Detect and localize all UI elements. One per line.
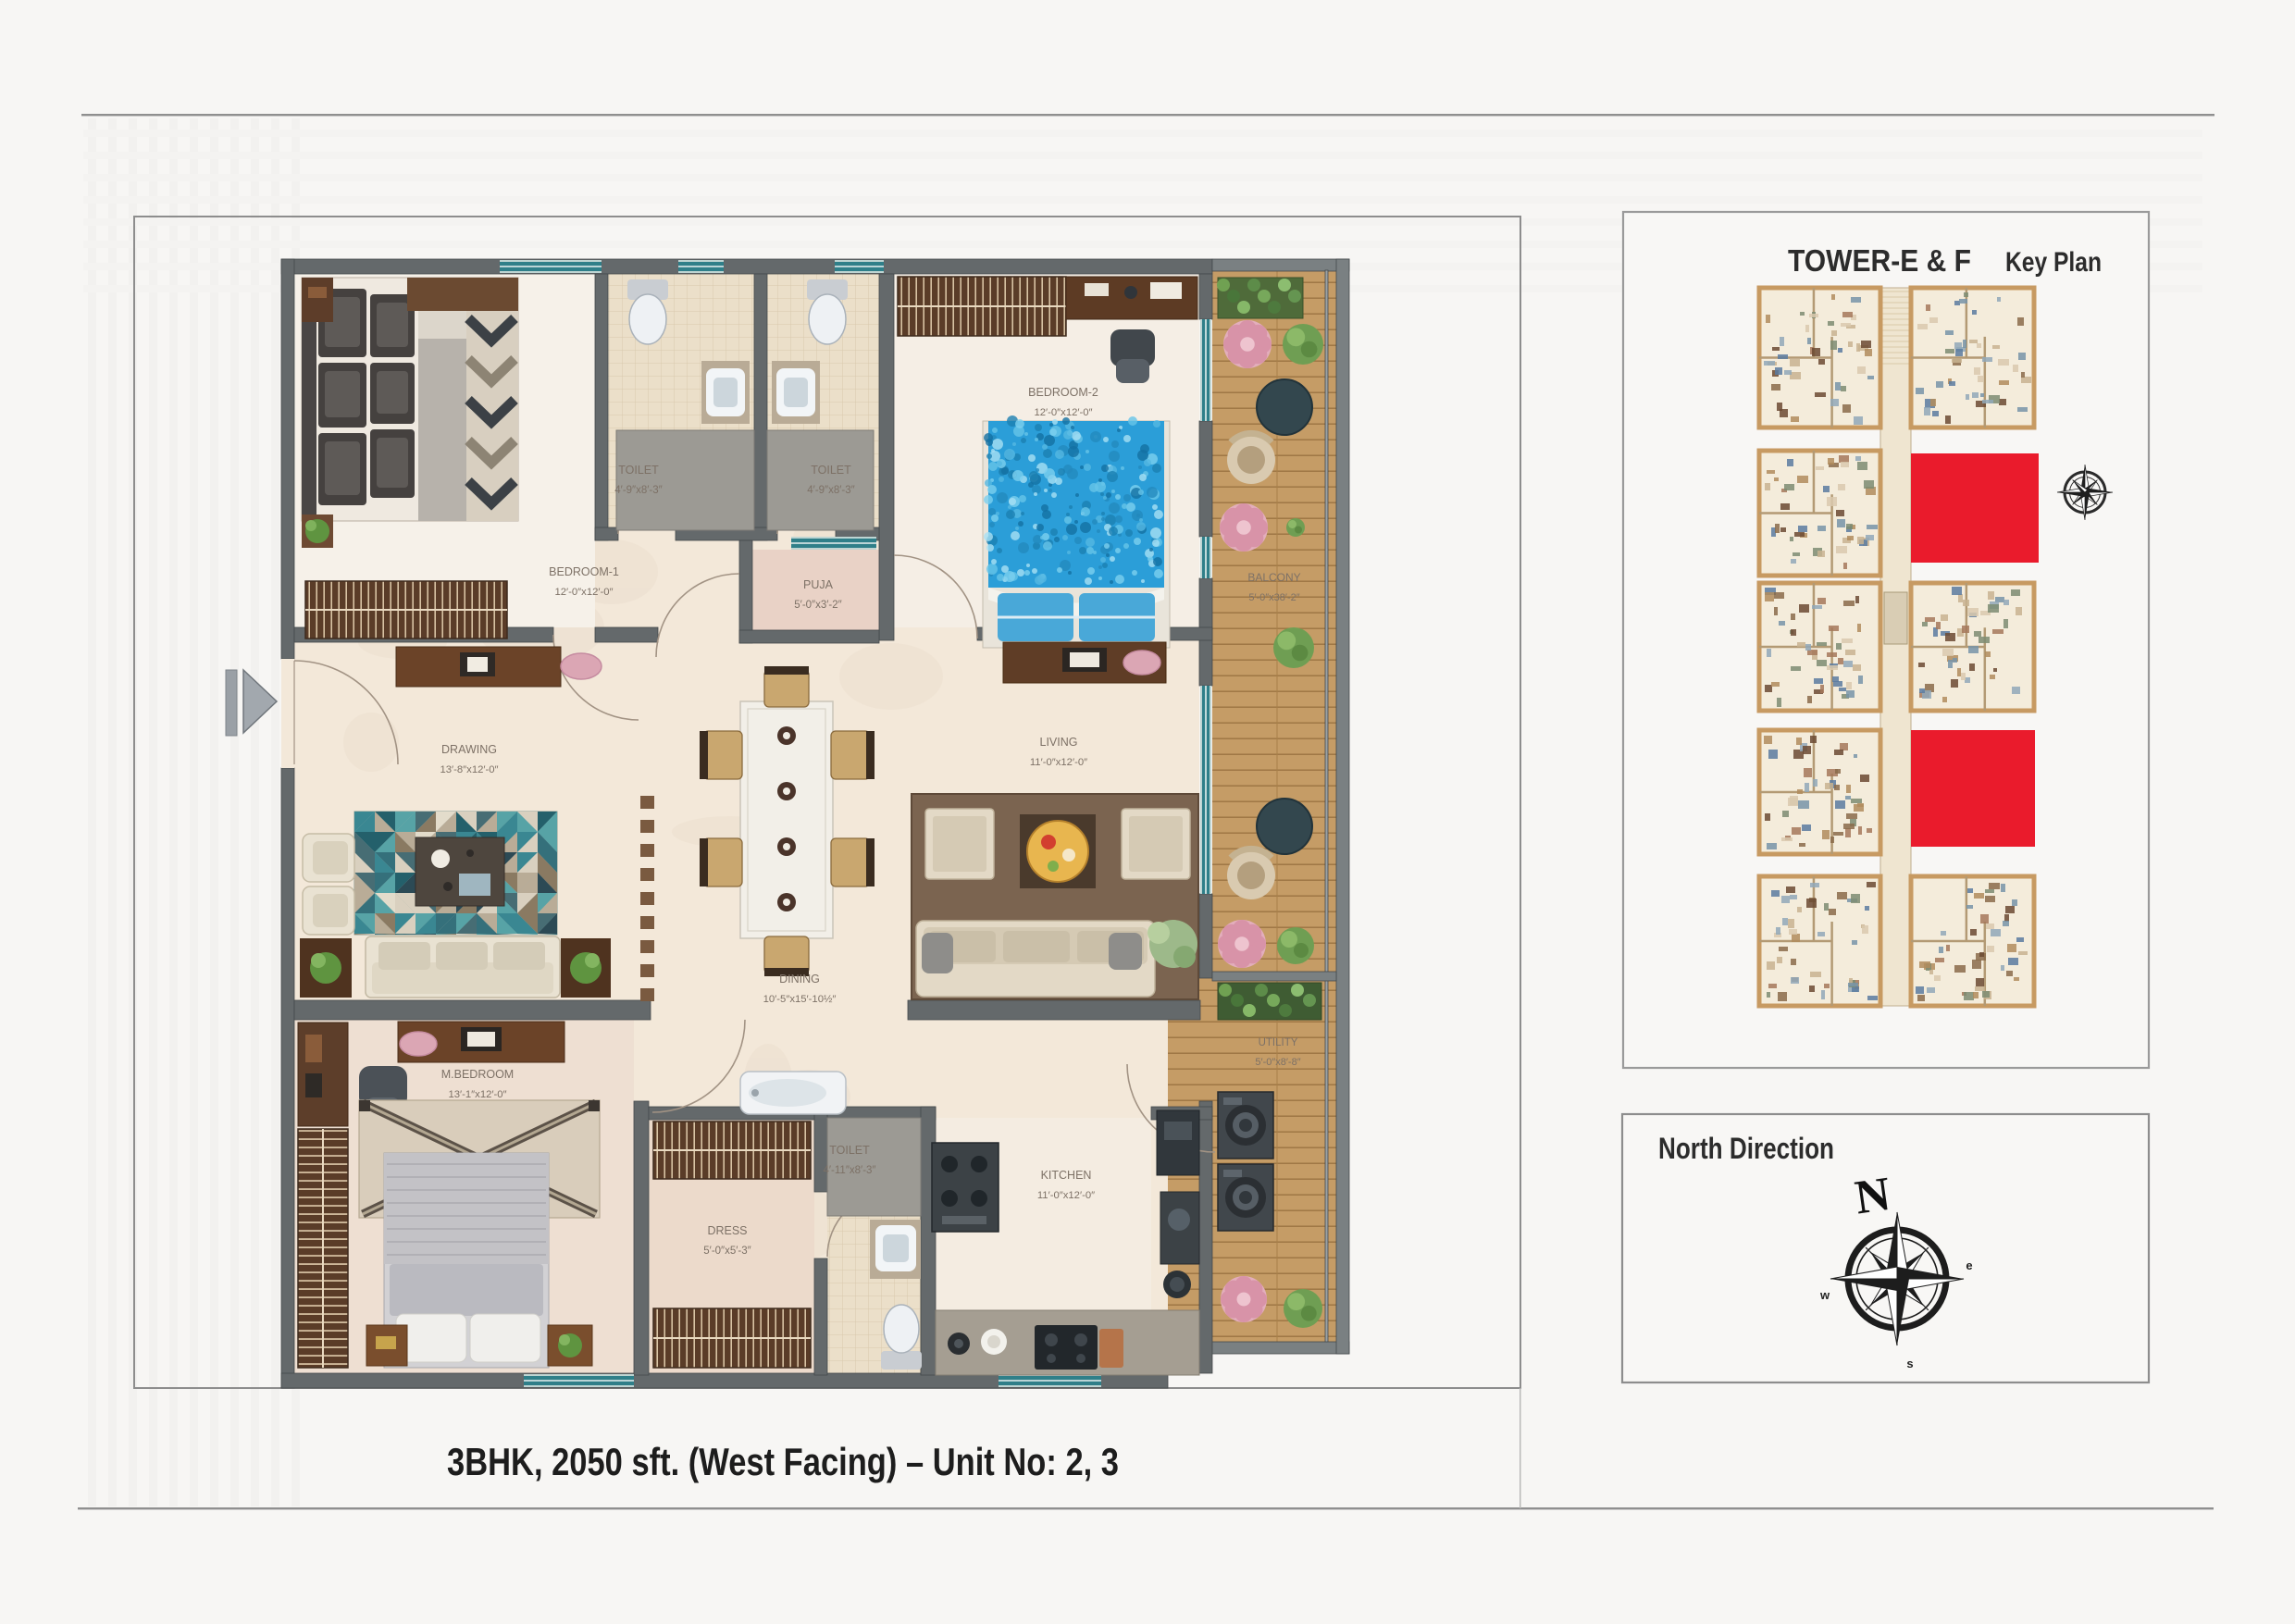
svg-text:LIVING: LIVING	[1040, 736, 1078, 749]
svg-text:DRAWING: DRAWING	[441, 743, 497, 756]
svg-text:5′-0″x3′-2″: 5′-0″x3′-2″	[794, 600, 841, 611]
svg-text:4′-9″x8′-3″: 4′-9″x8′-3″	[614, 485, 662, 496]
svg-text:North Direction: North Direction	[1658, 1132, 1834, 1165]
svg-text:DRESS: DRESS	[707, 1224, 747, 1237]
svg-text:BEDROOM-1: BEDROOM-1	[549, 565, 619, 578]
svg-text:PUJA: PUJA	[803, 578, 834, 591]
svg-text:5′-0″x8′-8″: 5′-0″x8′-8″	[1255, 1057, 1300, 1068]
svg-text:BEDROOM-2: BEDROOM-2	[1028, 386, 1098, 399]
svg-text:TOILET: TOILET	[829, 1144, 870, 1157]
svg-text:12′-0″x12′-0″: 12′-0″x12′-0″	[1034, 407, 1092, 418]
svg-text:3BHK, 2050 sft. (West Facing): 3BHK, 2050 sft. (West Facing) – Unit No:…	[447, 1440, 1119, 1483]
svg-text:10′-5″x15′-10½″: 10′-5″x15′-10½″	[763, 994, 837, 1005]
svg-text:13′-8″x12′-0″: 13′-8″x12′-0″	[440, 764, 498, 775]
svg-text:Key Plan: Key Plan	[2005, 247, 2102, 278]
svg-text:TOWER-E & F: TOWER-E & F	[1788, 243, 1971, 278]
svg-text:KITCHEN: KITCHEN	[1041, 1169, 1092, 1182]
svg-text:N: N	[1852, 1168, 1893, 1225]
svg-text:4′-11″x8′-3″: 4′-11″x8′-3″	[824, 1165, 876, 1176]
svg-text:M.BEDROOM: M.BEDROOM	[441, 1068, 514, 1081]
svg-text:5′-0″x38′-2″: 5′-0″x38′-2″	[1248, 592, 1299, 603]
svg-text:5′-0″x5′-3″: 5′-0″x5′-3″	[703, 1246, 751, 1257]
svg-text:4′-9″x8′-3″: 4′-9″x8′-3″	[807, 485, 854, 496]
svg-text:11′-0″x12′-0″: 11′-0″x12′-0″	[1030, 757, 1087, 768]
svg-text:TOILET: TOILET	[618, 464, 659, 477]
svg-text:BALCONY: BALCONY	[1247, 571, 1300, 584]
svg-text:12′-0″x12′-0″: 12′-0″x12′-0″	[554, 587, 613, 598]
svg-text:e: e	[1966, 1258, 1972, 1272]
svg-text:13′-1″x12′-0″: 13′-1″x12′-0″	[448, 1089, 506, 1100]
svg-text:w: w	[1819, 1288, 1830, 1302]
svg-text:UTILITY: UTILITY	[1259, 1037, 1298, 1048]
svg-text:TOILET: TOILET	[811, 464, 851, 477]
svg-text:s: s	[1906, 1357, 1913, 1370]
svg-text:11′-0″x12′-0″: 11′-0″x12′-0″	[1037, 1190, 1095, 1201]
svg-text:DINING: DINING	[779, 973, 820, 986]
